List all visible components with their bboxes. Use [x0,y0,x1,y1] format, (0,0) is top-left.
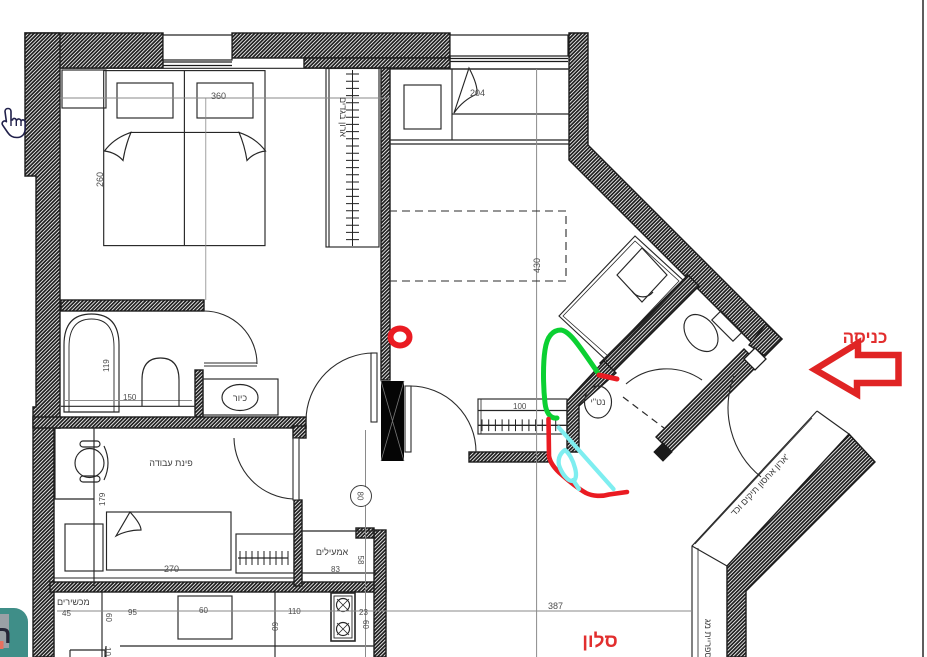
svg-text:60: 60 [104,613,113,622]
svg-text:100: 100 [513,402,527,411]
svg-text:204: 204 [470,88,485,98]
svg-text:45: 45 [62,609,71,618]
svg-text:110: 110 [288,607,301,616]
svg-text:23: 23 [359,608,368,617]
svg-text:83: 83 [331,565,340,574]
svg-text:נט"י: נט"י [591,397,606,407]
svg-text:58: 58 [356,556,365,565]
svg-text:60: 60 [270,622,279,631]
svg-text:360: 360 [211,91,226,101]
svg-text:סלון: סלון [582,631,618,652]
svg-text:270: 270 [164,564,179,574]
svg-text:119: 119 [102,359,111,372]
svg-text:60: 60 [199,606,208,615]
svg-text:60: 60 [361,620,370,629]
svg-text:כיור: כיור [233,393,247,403]
svg-text:150: 150 [123,393,137,402]
svg-text:אמעילים: אמעילים [316,547,349,557]
svg-text:ארון בגדים: ארון בגדים [338,97,348,137]
svg-text:179: 179 [98,492,107,506]
svg-text:387: 387 [548,601,563,611]
svg-text:260: 260 [95,172,105,187]
svg-text:95: 95 [128,608,137,617]
svg-text:כניסה: כניסה [843,328,888,347]
svg-text:80: 80 [356,492,365,501]
svg-text:פינת עבודה: פינת עבודה [149,458,192,468]
svg-text:ספריית מג': ספריית מג' [703,619,713,657]
svg-text:430: 430 [532,258,542,273]
svg-text:10: 10 [103,647,112,656]
svg-text:מכשירים: מכשירים [57,597,90,607]
